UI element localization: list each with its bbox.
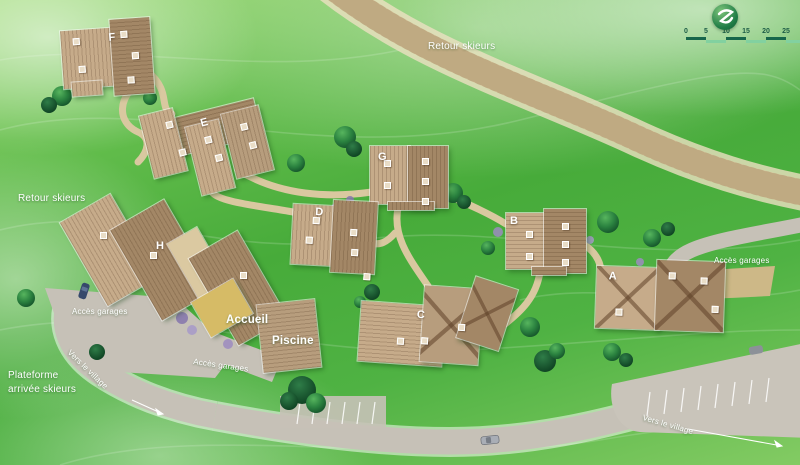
building-a-label: A (608, 270, 616, 282)
building-a-wing (655, 260, 725, 332)
scale-segment (726, 37, 746, 40)
scale-tick: 5 (704, 28, 708, 35)
roof-vent (120, 31, 127, 38)
roof-vent (700, 277, 707, 284)
roof-vent (562, 223, 569, 230)
label-acces-garages-right: Accès garages (714, 256, 770, 265)
label-piscine: Piscine (272, 335, 314, 347)
building-a-wing (595, 266, 661, 330)
building-a[interactable]: A (595, 258, 726, 336)
resort-logo (712, 4, 738, 30)
roof-vent (363, 273, 370, 280)
scale-tick: 0 (684, 28, 688, 35)
car (481, 435, 500, 445)
roof-vent (615, 308, 622, 315)
roof-vent (240, 272, 247, 279)
building-c-label: C (416, 309, 425, 322)
building-d-wing (330, 200, 378, 274)
scale-tick: 20 (762, 28, 770, 35)
roof-vent (150, 252, 157, 259)
label-plateforme-line1: Plateforme (8, 370, 58, 381)
scale-tick: 15 (742, 28, 750, 35)
resort-site-map: F E G D (0, 0, 800, 465)
building-c[interactable]: C (357, 273, 512, 383)
roof-vent (350, 229, 357, 236)
scale-segment (766, 37, 786, 40)
roof-vent (562, 241, 569, 248)
roof-vent (422, 178, 429, 185)
label-retour-skieurs-left: Retour skieurs (18, 193, 85, 204)
roof-vent (526, 231, 533, 238)
roof-vent (397, 337, 404, 344)
roof-vent (132, 52, 139, 59)
building-h-label: H (156, 240, 164, 252)
scale-segment (706, 40, 726, 43)
roof-vent (422, 158, 429, 165)
roof-vent (351, 249, 358, 256)
scale-segment (746, 40, 766, 43)
roof-vent (422, 198, 429, 205)
roof-vent (100, 232, 107, 239)
scale-tick: 25 (782, 28, 790, 35)
label-acces-garages-left: Accès garages (72, 307, 128, 316)
roof-vent (711, 306, 718, 313)
roof-vent (127, 76, 134, 83)
label-retour-skieurs-top: Retour skieurs (428, 41, 495, 52)
building-f-label: F (108, 31, 116, 43)
building-b[interactable]: B (506, 209, 586, 273)
building-g-label: G (378, 151, 387, 163)
roof-vent (526, 253, 533, 260)
building-b-label: B (510, 215, 518, 227)
scale-segment (686, 37, 706, 40)
roof-vent (458, 324, 465, 331)
label-plateforme-line2: arrivée skieurs (8, 384, 76, 395)
building-h[interactable]: H (70, 192, 320, 377)
roof-vent (562, 259, 569, 266)
building-g-wing (370, 146, 410, 204)
roof-vent (178, 148, 186, 156)
roof-vent (421, 337, 428, 344)
building-g[interactable]: G (370, 146, 448, 210)
scale-bar: 0 5 10 15 20 25 (683, 28, 800, 44)
roof-vent (669, 272, 676, 279)
label-accueil: Accueil (226, 314, 268, 326)
roof-vent (78, 66, 85, 73)
building-b-annex (532, 267, 566, 275)
building-f[interactable]: F (59, 17, 156, 99)
scale-segment (786, 40, 800, 43)
building-f-annex (72, 81, 103, 97)
roof-vent (73, 38, 80, 45)
mountain-z-icon (712, 4, 738, 30)
roof-vent (384, 182, 391, 189)
